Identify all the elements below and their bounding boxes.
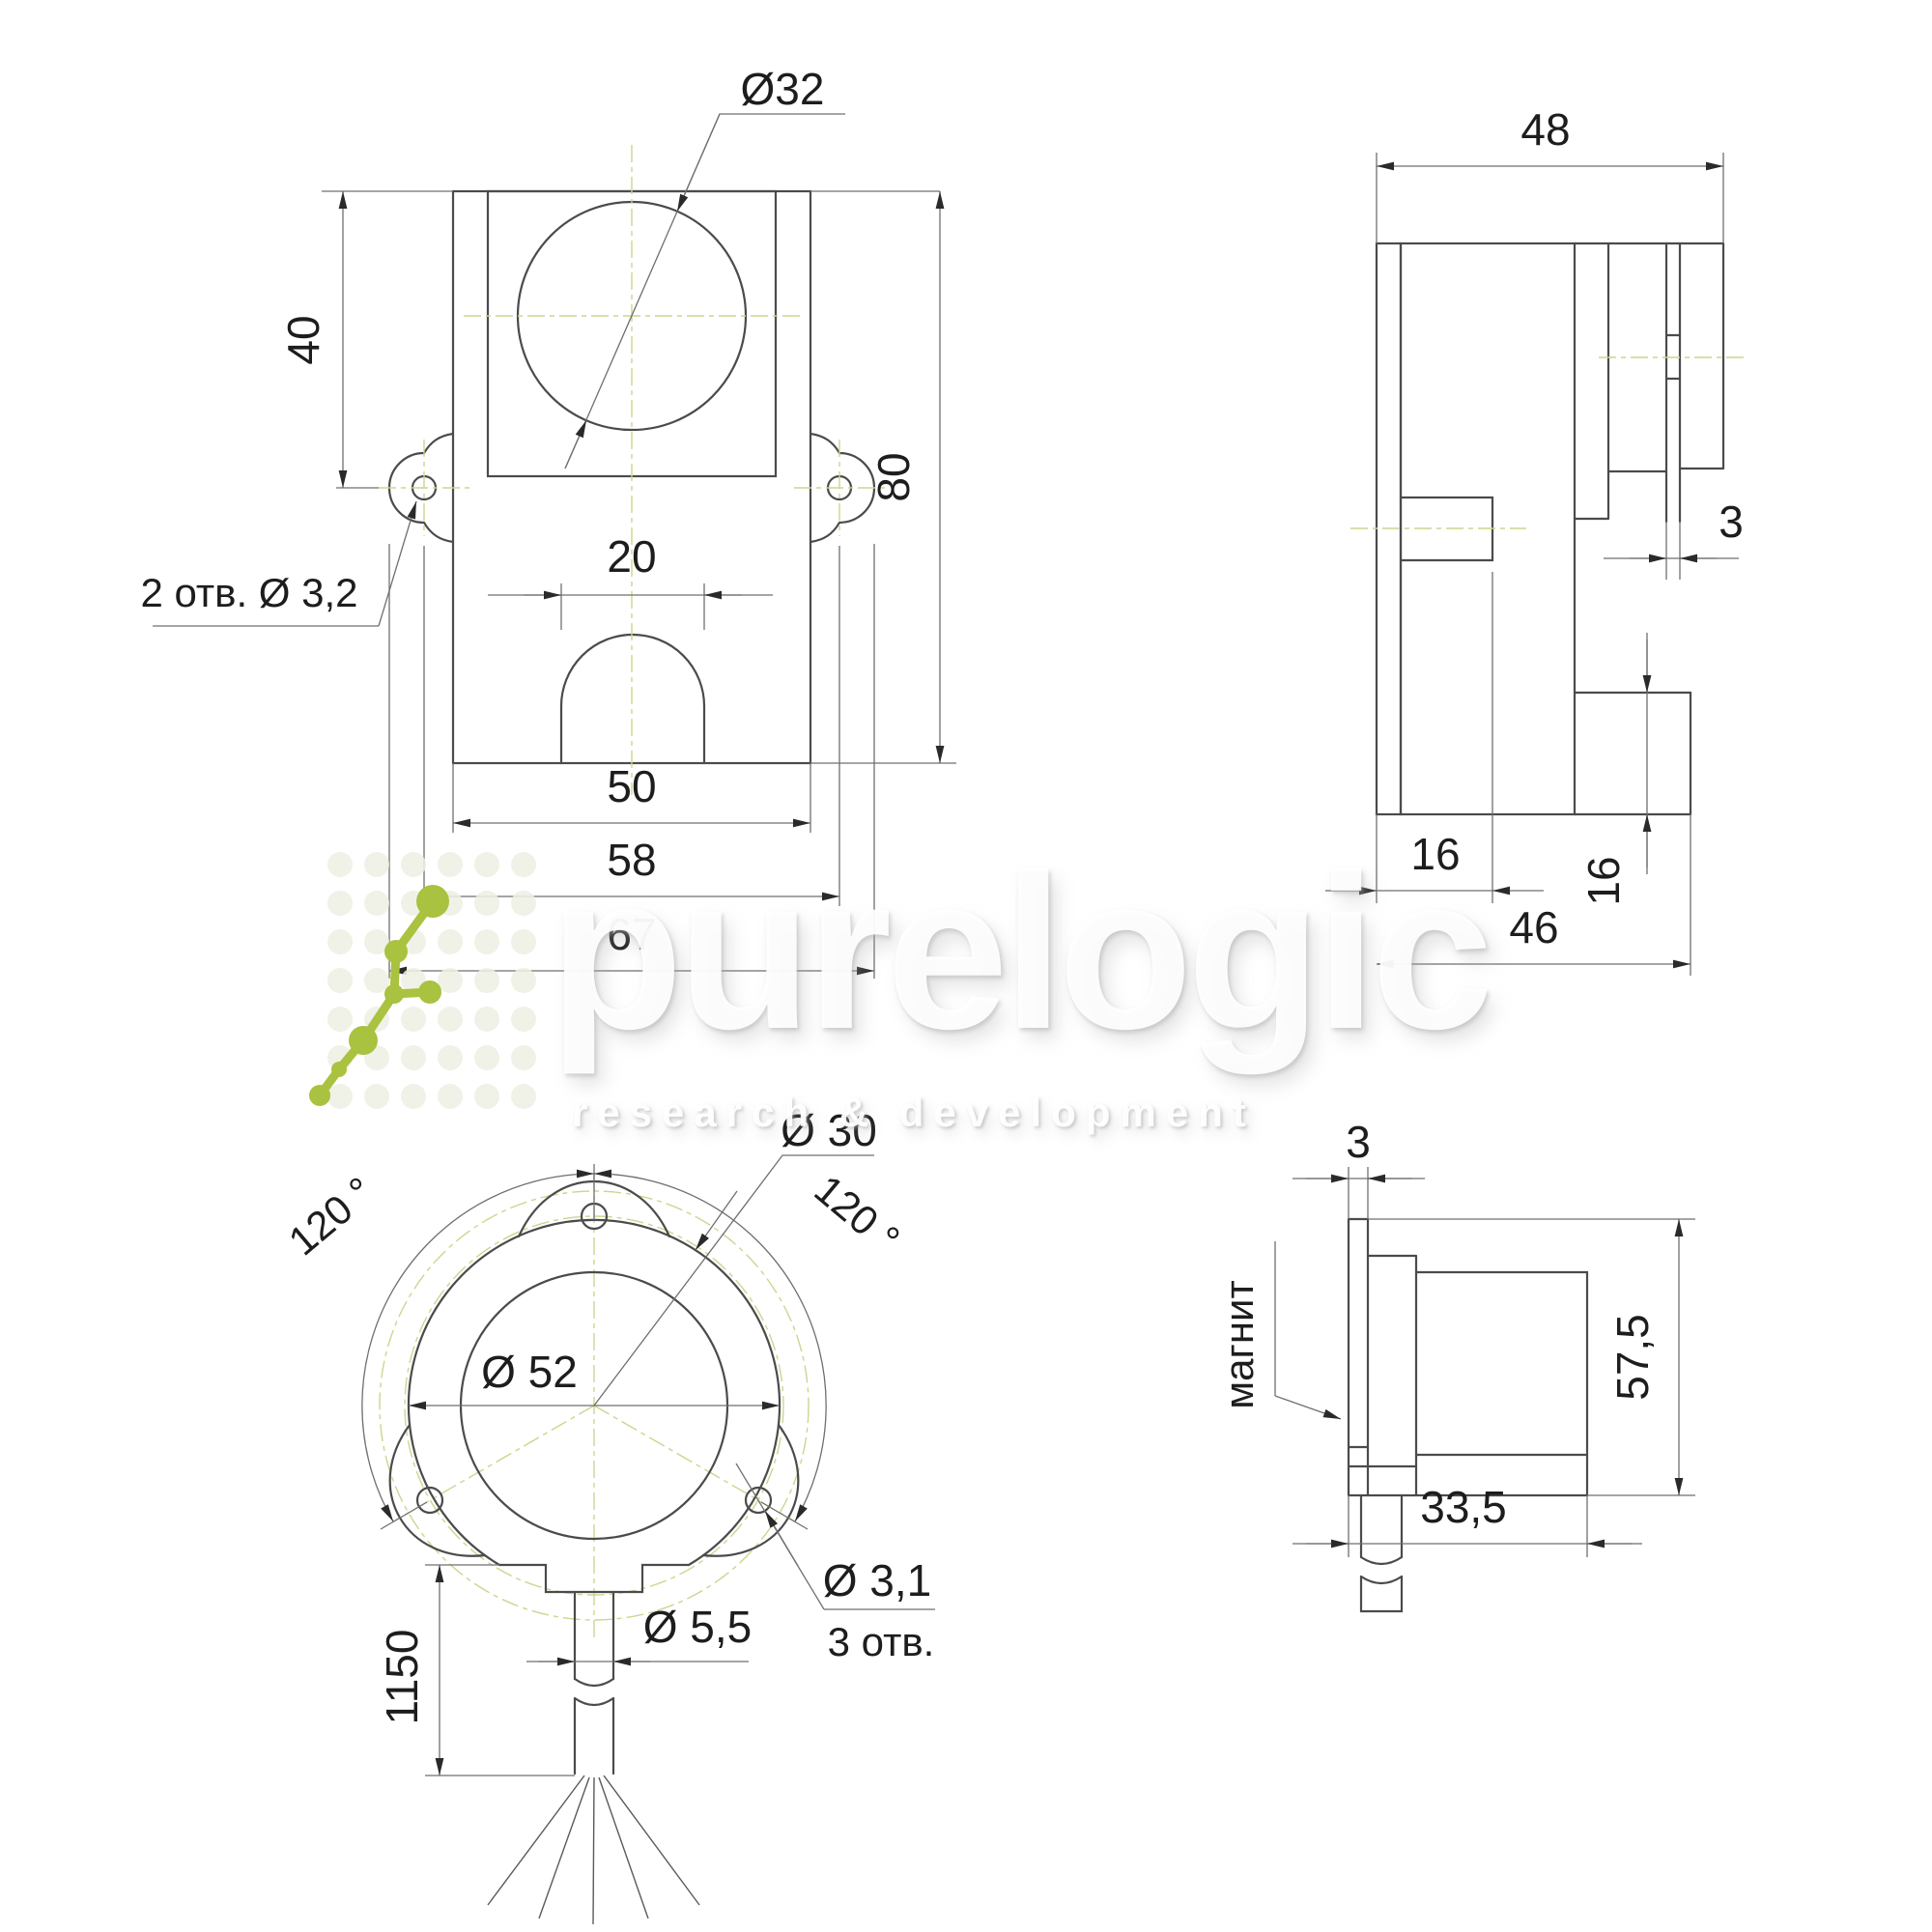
body-step-b [1608,243,1666,522]
cable-break-top [575,1679,613,1686]
dim-text-80: 80 [868,452,919,501]
dim-text-46: 46 [1509,902,1558,952]
spacer-plate [1368,1256,1416,1495]
d-shaft-cutout [561,635,704,763]
side-view-centerlines [1350,357,1744,528]
dim-text-48: 48 [1520,104,1570,155]
leader-magnet [1275,1396,1341,1419]
front-view-centerlines [379,145,885,795]
body-step-a [1575,243,1608,519]
dim-text-50: 50 [607,761,656,811]
cable-wires [488,1776,699,1924]
label-2-holes: 2 отв. Ø 3,2 [140,570,357,615]
dim-text-d30: Ø 30 [781,1105,877,1155]
dim-text-120-left: 120 ° [280,1168,383,1264]
dim-text-d31: Ø 3,1 [823,1555,932,1605]
dim-text-16-bottom: 16 [1410,829,1460,879]
dim-text-120-right: 120 ° [806,1166,908,1262]
dim-text-16-right: 16 [1578,856,1629,905]
magnet-cable-break-bottom [1361,1577,1402,1583]
dim-text-58: 58 [607,835,656,885]
magnet-side-view: 3 магнит 57,5 33,5 [1216,1117,1695,1611]
magnet-cable-end [1361,1577,1402,1611]
magnet-plate [1349,1219,1368,1495]
ring-view-centerlines [380,1174,809,1642]
cad-drawing: Ø32 40 80 20 50 58 67 2 отв. Ø 3,2 [0,0,1932,1932]
cable-break-bottom [575,1698,613,1705]
dim-text-67: 67 [607,909,656,959]
dim-text-1150: 1150 [377,1630,427,1725]
label-3-holes: 3 отв. [828,1619,935,1664]
magnet-view-outline [1349,1219,1587,1611]
magnet-cable-break-top [1361,1557,1402,1564]
dim-text-575: 57,5 [1607,1314,1658,1401]
leader-d32 [565,114,845,469]
drawing-sheet: Ø32 40 80 20 50 58 67 2 отв. Ø 3,2 [0,0,1932,1932]
magnet-cable-upper [1361,1495,1402,1557]
dim-text-335: 33,5 [1420,1482,1507,1532]
front-view-texts: Ø32 40 80 20 50 58 67 2 отв. Ø 3,2 [140,64,919,959]
front-view-dimensions [153,114,956,979]
cable-lower [575,1698,613,1774]
dim-text-40: 40 [278,315,328,364]
dim-text-20: 20 [607,531,656,582]
dim-text-3-magnet: 3 [1346,1117,1371,1167]
ring-view-dimensions [362,1155,935,1776]
magnet-view-body [1416,1272,1587,1495]
magnet-view-texts: 3 магнит 57,5 33,5 [1216,1117,1658,1532]
end-cap [1680,243,1723,469]
side-view-dimensions [1325,153,1739,976]
label-magnet: магнит [1216,1280,1262,1408]
dim-text-d52: Ø 52 [481,1347,578,1397]
ring-view: Ø 30 Ø 52 120 ° 120 ° Ø 3,1 3 отв. Ø 5,5… [280,1105,935,1924]
ring-view-texts: Ø 30 Ø 52 120 ° 120 ° Ø 3,1 3 отв. Ø 5,5… [280,1105,935,1724]
side-view: 48 3 16 16 46 [1325,104,1744,976]
connector-block [1575,693,1690,814]
dim-text-d55: Ø 5,5 [643,1602,753,1652]
front-view: Ø32 40 80 20 50 58 67 2 отв. Ø 3,2 [140,64,956,979]
dim-text-d32: Ø32 [741,64,825,114]
dim-text-3: 3 [1719,497,1744,547]
